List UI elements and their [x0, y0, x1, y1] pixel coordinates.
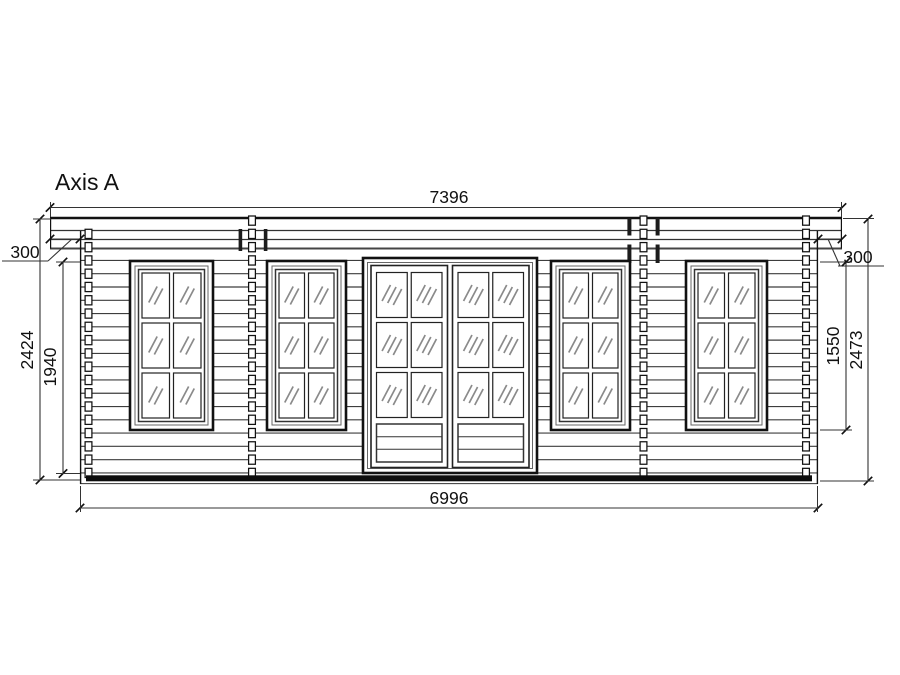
window — [551, 261, 630, 430]
facade-linework — [2, 202, 884, 512]
drawing-title: Axis A — [55, 169, 120, 195]
dimension-left-total-height-label: 2424 — [17, 330, 37, 369]
drawing-canvas: Axis A 7396 6996 300 300 2424 1940 1550 … — [0, 0, 900, 675]
dimension-bottom-width-label: 6996 — [430, 488, 469, 508]
entrance-door — [363, 258, 537, 473]
dimension-right-window-height-label: 1550 — [823, 326, 843, 365]
window — [130, 261, 213, 430]
dimension-left-opening-height-label: 1940 — [40, 347, 60, 386]
dimension-top-width-label: 7396 — [430, 187, 469, 207]
window — [267, 261, 346, 430]
dimension-left-overhang-label: 300 — [10, 242, 39, 262]
facade-elevation-drawing: Axis A 7396 6996 300 300 2424 1940 1550 … — [0, 0, 900, 675]
dimension-right-total-height-label: 2473 — [846, 331, 866, 370]
roof-band — [50, 218, 842, 249]
window — [686, 261, 767, 430]
dimension-right-overhang-label: 300 — [843, 247, 872, 267]
